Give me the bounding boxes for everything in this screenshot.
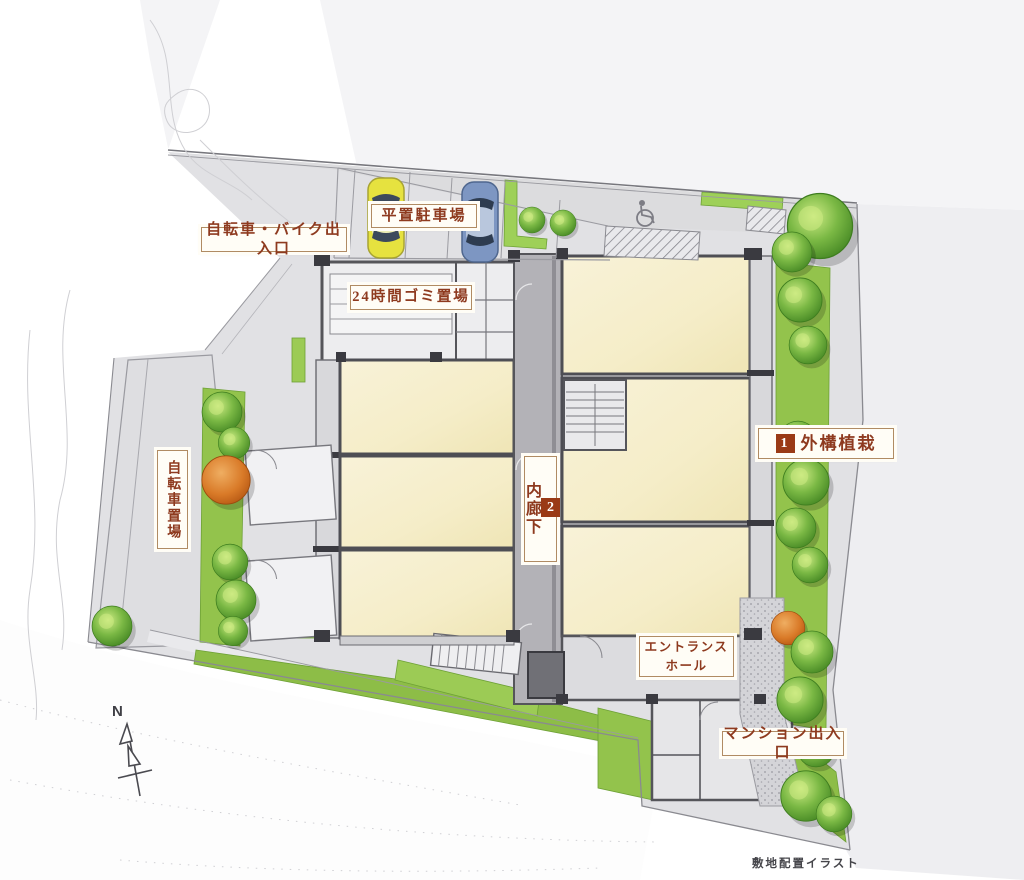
- label-bicycle-parking: 自転車置場: [157, 450, 188, 549]
- label-exterior-planting: 1 外構植栽: [758, 428, 894, 459]
- site-plan-page: N 自転車・バイク出入口 平置駐車場 24時間ゴミ置場 自転車置場 2 内廊下 …: [0, 0, 1024, 880]
- label-inner-corridor: 2 内廊下: [524, 456, 557, 562]
- label-entrance-hall: エントランス ホール: [639, 636, 734, 677]
- label-garbage-24h: 24時間ゴミ置場: [350, 285, 472, 310]
- caption-title: 敷地配置イラスト: [752, 855, 860, 871]
- svg-text:N: N: [112, 703, 123, 720]
- label-flat-parking: 平置駐車場: [371, 204, 477, 228]
- label-mansion-entrance: マンション出入口: [722, 731, 844, 756]
- inner-corridor-number-badge: 2: [541, 498, 560, 517]
- label-bike-entrance: 自転車・バイク出入口: [201, 227, 347, 252]
- exterior-planting-number-badge: 1: [776, 434, 795, 453]
